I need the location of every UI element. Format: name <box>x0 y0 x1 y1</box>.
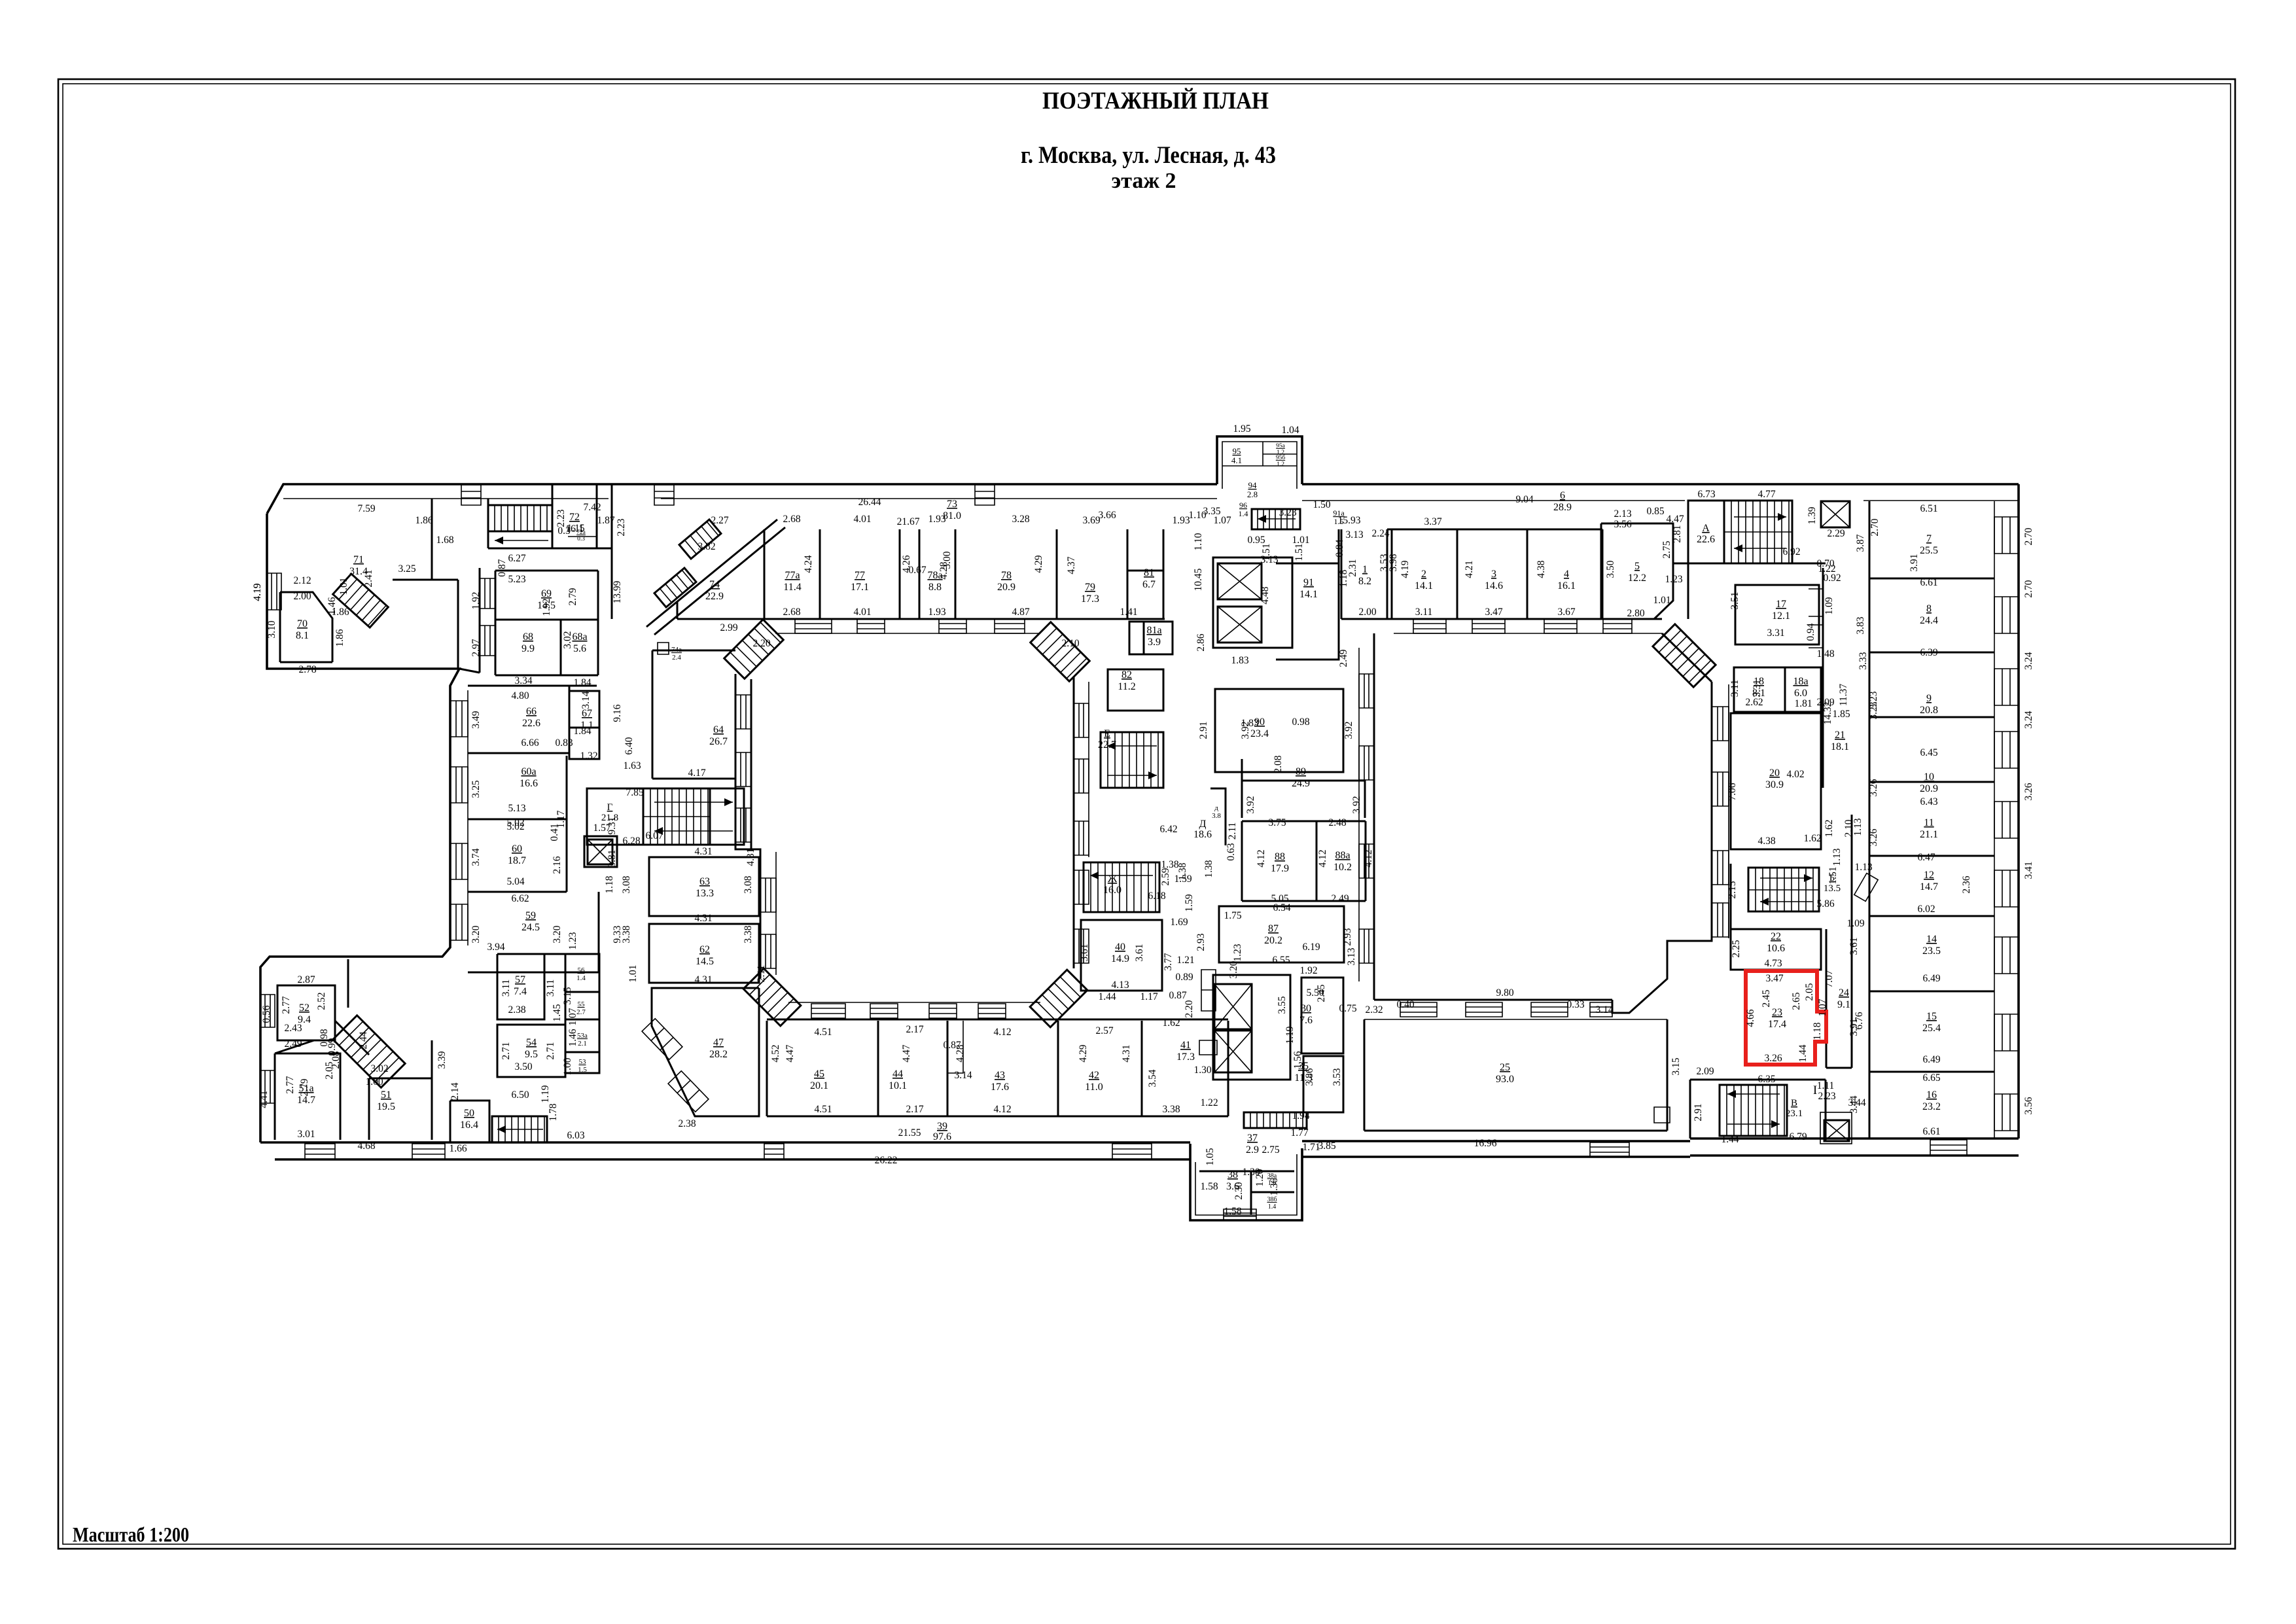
svg-text:1.10: 1.10 <box>1188 510 1206 521</box>
svg-text:12.1: 12.1 <box>1772 610 1790 622</box>
svg-text:0.63: 0.63 <box>1226 843 1237 860</box>
svg-text:1.75: 1.75 <box>1224 910 1241 921</box>
svg-text:2.38: 2.38 <box>678 1118 696 1129</box>
svg-text:1.07: 1.07 <box>1817 998 1828 1016</box>
svg-text:2.24: 2.24 <box>1371 528 1389 539</box>
svg-text:20.9: 20.9 <box>1920 783 1938 794</box>
svg-text:6.42: 6.42 <box>1159 824 1177 835</box>
svg-text:42: 42 <box>1089 1070 1099 1081</box>
svg-text:1.50: 1.50 <box>1313 499 1330 510</box>
svg-text:1.46: 1.46 <box>567 1029 578 1046</box>
svg-text:1.41: 1.41 <box>1120 607 1137 618</box>
svg-text:0.3: 0.3 <box>577 536 585 542</box>
svg-text:6: 6 <box>1560 490 1565 501</box>
svg-text:14.32: 14.32 <box>1822 702 1833 725</box>
svg-text:6.7: 6.7 <box>1142 579 1156 590</box>
svg-text:25.5: 25.5 <box>1920 545 1938 556</box>
svg-text:26.22: 26.22 <box>875 1155 898 1166</box>
svg-text:21.67: 21.67 <box>897 516 920 527</box>
svg-text:7.6: 7.6 <box>1299 1015 1313 1026</box>
svg-text:3.51: 3.51 <box>1729 591 1740 609</box>
svg-text:6.03: 6.03 <box>567 1130 584 1141</box>
svg-text:2.48: 2.48 <box>1328 817 1346 828</box>
svg-text:5.23: 5.23 <box>508 574 525 585</box>
svg-text:2.43: 2.43 <box>284 1023 302 1034</box>
svg-text:21: 21 <box>1835 730 1845 741</box>
svg-text:0.56: 0.56 <box>261 1005 272 1023</box>
svg-text:97.6: 97.6 <box>933 1131 951 1142</box>
svg-text:62: 62 <box>699 944 710 955</box>
svg-text:2.87: 2.87 <box>297 974 315 985</box>
svg-text:2.17: 2.17 <box>906 1024 923 1035</box>
svg-text:68: 68 <box>523 631 533 643</box>
svg-text:53: 53 <box>579 1058 587 1066</box>
svg-text:2.14: 2.14 <box>450 1082 461 1100</box>
svg-text:63: 63 <box>699 876 710 887</box>
svg-text:2.79: 2.79 <box>299 1078 310 1096</box>
svg-text:1.23: 1.23 <box>1665 574 1682 585</box>
svg-text:1.05: 1.05 <box>1205 1148 1216 1165</box>
svg-text:этаж 2: этаж 2 <box>1112 169 1176 193</box>
svg-text:1.10: 1.10 <box>1193 533 1204 550</box>
svg-text:1.18: 1.18 <box>604 875 615 893</box>
svg-text:1.38: 1.38 <box>1203 860 1214 877</box>
svg-text:38б: 38б <box>1267 1196 1277 1203</box>
svg-text:3.75: 3.75 <box>1268 817 1286 828</box>
svg-text:14.1: 14.1 <box>1299 589 1318 600</box>
svg-text:87: 87 <box>1268 923 1279 934</box>
svg-text:3.23: 3.23 <box>1868 691 1879 709</box>
svg-text:1.86: 1.86 <box>334 629 345 646</box>
svg-text:4.26: 4.26 <box>901 555 912 573</box>
svg-text:2.16: 2.16 <box>552 856 563 874</box>
svg-text:2.05: 2.05 <box>324 1061 335 1079</box>
svg-text:18.1: 18.1 <box>1831 741 1849 752</box>
svg-text:2.77: 2.77 <box>285 1076 296 1093</box>
svg-text:67: 67 <box>582 708 592 719</box>
svg-text:1.58: 1.58 <box>1200 1181 1218 1192</box>
svg-text:3.14: 3.14 <box>1595 1004 1613 1015</box>
svg-text:3.26: 3.26 <box>2023 783 2034 800</box>
svg-text:13.3: 13.3 <box>696 888 714 899</box>
svg-text:2.9: 2.9 <box>1246 1144 1259 1156</box>
svg-text:2.71: 2.71 <box>545 1042 556 1059</box>
svg-text:4.01: 4.01 <box>853 607 871 618</box>
svg-text:3.85: 3.85 <box>1318 1140 1335 1152</box>
svg-text:2.49: 2.49 <box>1331 893 1349 904</box>
svg-text:3.86: 3.86 <box>1304 1068 1315 1086</box>
svg-text:2.70: 2.70 <box>2023 580 2034 597</box>
svg-text:2.81: 2.81 <box>1672 525 1683 542</box>
svg-text:24.4: 24.4 <box>1920 615 1938 626</box>
svg-text:21.55: 21.55 <box>898 1127 921 1139</box>
svg-text:2.99: 2.99 <box>720 622 737 633</box>
svg-text:4.31: 4.31 <box>694 913 712 924</box>
svg-text:4.66: 4.66 <box>1745 1009 1756 1027</box>
svg-text:19.5: 19.5 <box>377 1101 395 1112</box>
svg-text:2.79: 2.79 <box>567 588 578 605</box>
svg-text:5: 5 <box>1634 561 1640 572</box>
svg-text:4.12: 4.12 <box>1317 849 1328 867</box>
svg-text:2.23: 2.23 <box>1818 1091 1835 1102</box>
svg-text:0.85: 0.85 <box>1646 506 1664 517</box>
svg-text:3.02: 3.02 <box>370 1063 388 1074</box>
svg-text:11.2: 11.2 <box>1118 681 1135 692</box>
svg-text:1.87: 1.87 <box>597 515 614 526</box>
svg-text:14.5: 14.5 <box>696 956 714 967</box>
svg-text:60a: 60a <box>521 766 536 777</box>
svg-text:3.92: 3.92 <box>1240 721 1251 739</box>
svg-text:10.2: 10.2 <box>1333 862 1352 873</box>
svg-text:3.25: 3.25 <box>398 563 415 574</box>
svg-text:3.11: 3.11 <box>545 980 556 997</box>
svg-text:14: 14 <box>1926 934 1937 945</box>
svg-text:1.48: 1.48 <box>1816 648 1834 660</box>
svg-text:7.59: 7.59 <box>357 503 375 514</box>
svg-text:6.47: 6.47 <box>1917 852 1935 863</box>
svg-text:0.94: 0.94 <box>1805 623 1816 641</box>
svg-text:3.67: 3.67 <box>1557 607 1575 618</box>
svg-text:3.11: 3.11 <box>501 980 512 997</box>
svg-text:1.4: 1.4 <box>1268 1203 1277 1210</box>
svg-text:3.14: 3.14 <box>580 691 592 709</box>
svg-text:Д: Д <box>1199 819 1207 830</box>
svg-text:64: 64 <box>713 724 724 735</box>
svg-text:1.81: 1.81 <box>1794 698 1812 709</box>
svg-text:1.5: 1.5 <box>578 1066 587 1074</box>
svg-text:3.92: 3.92 <box>1245 796 1256 813</box>
svg-text:2.20: 2.20 <box>752 638 770 649</box>
svg-text:2.71: 2.71 <box>501 1042 512 1059</box>
svg-text:95б: 95б <box>1276 454 1286 461</box>
svg-text:2.10: 2.10 <box>1843 819 1854 837</box>
svg-text:22.9: 22.9 <box>705 591 724 602</box>
svg-text:20.2: 20.2 <box>1264 935 1282 946</box>
svg-text:11.37: 11.37 <box>1838 684 1849 707</box>
svg-text:3.94: 3.94 <box>487 942 504 953</box>
svg-text:3.24: 3.24 <box>2023 652 2034 669</box>
svg-text:15.93: 15.93 <box>1338 515 1361 526</box>
svg-text:1.62: 1.62 <box>1162 1017 1180 1029</box>
svg-text:1.66: 1.66 <box>449 1143 467 1154</box>
svg-text:22.6: 22.6 <box>1697 534 1715 545</box>
svg-text:56: 56 <box>578 966 586 974</box>
svg-text:70: 70 <box>297 618 308 629</box>
svg-text:4.48: 4.48 <box>1260 586 1271 604</box>
svg-text:3.15: 3.15 <box>562 987 573 1004</box>
svg-text:57: 57 <box>515 974 525 985</box>
svg-text:4.37: 4.37 <box>1066 556 1077 574</box>
svg-text:16.6: 16.6 <box>520 778 538 789</box>
svg-text:1.46: 1.46 <box>327 597 338 614</box>
svg-text:20.9: 20.9 <box>997 582 1016 593</box>
svg-text:2.91: 2.91 <box>1198 721 1209 739</box>
svg-text:д: д <box>1214 804 1218 812</box>
svg-text:4.24: 4.24 <box>803 555 814 573</box>
svg-text:Е: Е <box>1104 728 1110 739</box>
svg-text:13.99: 13.99 <box>612 580 623 603</box>
svg-text:1.92: 1.92 <box>541 598 552 616</box>
svg-text:1.38: 1.38 <box>1177 862 1188 880</box>
svg-text:1.01: 1.01 <box>627 964 639 982</box>
svg-text:23.4: 23.4 <box>1250 728 1269 739</box>
svg-text:52: 52 <box>299 1002 309 1014</box>
svg-text:2.57: 2.57 <box>1095 1025 1113 1036</box>
svg-text:5.05: 5.05 <box>1271 893 1288 904</box>
svg-text:20: 20 <box>1769 768 1780 779</box>
svg-text:4.29: 4.29 <box>1078 1044 1089 1062</box>
svg-text:3.11: 3.11 <box>1415 607 1433 618</box>
svg-text:10.6: 10.6 <box>1767 943 1785 954</box>
svg-text:2.97: 2.97 <box>470 639 482 656</box>
svg-text:1: 1 <box>1362 564 1368 575</box>
svg-text:Масштаб 1:200: Масштаб 1:200 <box>73 1523 189 1546</box>
svg-text:4.47: 4.47 <box>1666 514 1684 525</box>
svg-text:4.38: 4.38 <box>1536 560 1547 578</box>
svg-text:2.09: 2.09 <box>1696 1066 1714 1077</box>
svg-text:7.4: 7.4 <box>514 986 527 997</box>
svg-text:3.31: 3.31 <box>1752 679 1763 697</box>
svg-text:3.26: 3.26 <box>1868 779 1879 796</box>
svg-text:6.61: 6.61 <box>1922 1126 1940 1137</box>
svg-text:30.9: 30.9 <box>1765 779 1784 790</box>
svg-text:0.87: 0.87 <box>1169 990 1186 1001</box>
svg-text:1.56: 1.56 <box>1292 1051 1303 1068</box>
svg-text:1.20: 1.20 <box>1254 1169 1265 1186</box>
svg-text:3.61: 3.61 <box>1079 944 1090 961</box>
svg-text:20.1: 20.1 <box>810 1080 828 1091</box>
svg-text:3.25: 3.25 <box>470 780 482 798</box>
svg-text:1.59: 1.59 <box>1184 894 1195 911</box>
svg-text:28.9: 28.9 <box>1553 502 1572 513</box>
svg-text:2.49: 2.49 <box>284 1038 302 1050</box>
svg-text:0.89: 0.89 <box>1175 972 1193 983</box>
svg-text:4.80: 4.80 <box>511 690 529 701</box>
svg-text:4.41: 4.41 <box>258 1090 270 1108</box>
svg-text:44: 44 <box>892 1068 903 1080</box>
svg-text:1.09: 1.09 <box>1846 918 1864 929</box>
svg-text:14.7: 14.7 <box>1920 881 1938 892</box>
svg-text:18a: 18a <box>1793 676 1808 687</box>
svg-text:1.44: 1.44 <box>1797 1044 1809 1062</box>
svg-text:6.35: 6.35 <box>1757 1074 1775 1085</box>
svg-text:77: 77 <box>855 570 865 581</box>
svg-text:3.77: 3.77 <box>1163 953 1174 970</box>
svg-text:3.38: 3.38 <box>1162 1104 1180 1115</box>
svg-text:2.11: 2.11 <box>1227 822 1238 840</box>
svg-text:3.92: 3.92 <box>1351 796 1362 813</box>
svg-text:25: 25 <box>1500 1062 1510 1073</box>
svg-text:2.65: 2.65 <box>1791 992 1802 1010</box>
svg-text:3.14: 3.14 <box>954 1070 972 1081</box>
svg-text:0.33: 0.33 <box>1566 999 1584 1010</box>
svg-text:55: 55 <box>578 1000 586 1008</box>
svg-text:26.44: 26.44 <box>858 497 881 508</box>
svg-text:2.4: 2.4 <box>672 654 681 662</box>
svg-text:8.1: 8.1 <box>296 630 309 641</box>
svg-text:2.68: 2.68 <box>783 607 800 618</box>
svg-text:4.31: 4.31 <box>745 848 756 866</box>
svg-text:4.01: 4.01 <box>853 514 871 525</box>
svg-text:0.70: 0.70 <box>1816 558 1834 569</box>
svg-text:3.31: 3.31 <box>1767 627 1784 639</box>
svg-text:16.96: 16.96 <box>1474 1138 1497 1149</box>
svg-text:5.04: 5.04 <box>506 876 524 887</box>
svg-text:1.30: 1.30 <box>1193 1065 1211 1076</box>
svg-text:2.59: 2.59 <box>1160 868 1171 885</box>
svg-text:3.91: 3.91 <box>1909 554 1920 571</box>
svg-text:23.2: 23.2 <box>1922 1101 1941 1112</box>
svg-text:0.84: 0.84 <box>1334 539 1345 557</box>
svg-text:1.77: 1.77 <box>1290 1127 1308 1139</box>
svg-text:1.00: 1.00 <box>365 1076 383 1087</box>
svg-text:1.07: 1.07 <box>567 1008 578 1025</box>
svg-text:2.05: 2.05 <box>1804 983 1815 1000</box>
svg-text:1.51: 1.51 <box>1828 866 1839 884</box>
svg-text:6.19: 6.19 <box>1302 942 1320 953</box>
svg-text:3.39: 3.39 <box>436 1051 448 1068</box>
svg-text:3.37: 3.37 <box>1424 516 1441 527</box>
svg-text:2.30: 2.30 <box>1233 1182 1245 1199</box>
svg-text:1.62: 1.62 <box>1824 819 1835 837</box>
svg-text:17.3: 17.3 <box>1176 1051 1195 1063</box>
svg-text:4.31: 4.31 <box>1121 1044 1132 1062</box>
svg-text:1.4: 1.4 <box>1239 509 1248 518</box>
svg-text:1.83: 1.83 <box>1231 655 1248 666</box>
svg-text:1.51: 1.51 <box>1261 543 1272 561</box>
svg-text:50: 50 <box>464 1108 474 1119</box>
svg-text:54: 54 <box>526 1037 537 1048</box>
svg-text:4.12: 4.12 <box>1363 849 1374 867</box>
svg-text:3.44: 3.44 <box>1848 1095 1860 1113</box>
svg-text:2.77: 2.77 <box>281 996 292 1014</box>
svg-text:9.16: 9.16 <box>612 704 623 722</box>
svg-text:6.61: 6.61 <box>1920 577 1937 588</box>
svg-text:11.0: 11.0 <box>1085 1082 1103 1093</box>
svg-text:82: 82 <box>1122 669 1132 680</box>
svg-text:4.51: 4.51 <box>814 1027 832 1038</box>
svg-text:5.6: 5.6 <box>573 643 586 654</box>
svg-text:1.13: 1.13 <box>1854 862 1872 873</box>
svg-text:2.91: 2.91 <box>1693 1103 1704 1121</box>
svg-text:2.93: 2.93 <box>1195 933 1207 951</box>
svg-text:6.39: 6.39 <box>1920 647 1937 658</box>
svg-text:3.49: 3.49 <box>470 711 482 728</box>
svg-text:1.4: 1.4 <box>576 974 586 982</box>
svg-text:2.00: 2.00 <box>1358 607 1376 618</box>
svg-text:95a: 95a <box>1276 443 1286 450</box>
svg-text:3.56: 3.56 <box>2023 1097 2034 1114</box>
svg-text:4.21: 4.21 <box>1464 560 1475 578</box>
svg-text:6.18: 6.18 <box>1148 891 1165 902</box>
svg-text:1.23: 1.23 <box>1232 944 1243 961</box>
svg-text:2.44: 2.44 <box>358 1031 369 1049</box>
svg-text:В: В <box>1791 1098 1797 1108</box>
svg-text:3.74: 3.74 <box>470 848 482 866</box>
svg-text:40: 40 <box>1115 942 1125 953</box>
svg-text:4.31: 4.31 <box>694 974 712 985</box>
svg-text:14.9: 14.9 <box>1111 953 1129 964</box>
svg-text:4.38: 4.38 <box>1757 836 1775 847</box>
svg-text:94: 94 <box>1248 480 1258 490</box>
svg-text:39: 39 <box>937 1121 947 1132</box>
svg-text:10.45: 10.45 <box>1193 568 1204 591</box>
svg-text:41: 41 <box>1180 1040 1191 1051</box>
svg-text:4.47: 4.47 <box>901 1044 912 1062</box>
svg-text:93.0: 93.0 <box>1496 1074 1514 1085</box>
svg-text:6.92: 6.92 <box>1782 546 1800 557</box>
svg-text:6.55: 6.55 <box>1272 955 1290 966</box>
svg-text:3.91: 3.91 <box>1848 1018 1860 1036</box>
svg-text:0.92: 0.92 <box>1823 573 1841 584</box>
svg-text:6.0: 6.0 <box>1794 688 1807 699</box>
svg-text:2.31: 2.31 <box>1347 559 1358 576</box>
svg-text:7.42: 7.42 <box>583 502 601 513</box>
svg-text:3.15: 3.15 <box>1670 1057 1682 1075</box>
svg-text:1.09: 1.09 <box>1824 597 1835 614</box>
svg-text:3.98: 3.98 <box>1388 554 1399 571</box>
svg-text:6.49: 6.49 <box>1922 1054 1940 1065</box>
svg-text:1.00: 1.00 <box>562 1057 573 1075</box>
svg-text:3.38: 3.38 <box>621 925 632 943</box>
svg-text:38: 38 <box>1227 1169 1238 1180</box>
svg-text:8.2: 8.2 <box>1358 576 1371 587</box>
svg-text:17.3: 17.3 <box>1081 593 1099 605</box>
svg-text:17.4: 17.4 <box>1768 1019 1786 1030</box>
svg-text:47: 47 <box>713 1037 724 1048</box>
svg-text:1.92: 1.92 <box>470 591 482 609</box>
svg-text:4.31: 4.31 <box>694 846 712 857</box>
svg-text:1.36: 1.36 <box>1269 1178 1280 1195</box>
svg-text:3.20: 3.20 <box>552 925 563 943</box>
svg-text:3.13: 3.13 <box>1346 947 1357 965</box>
svg-text:0.75: 0.75 <box>1339 1003 1356 1014</box>
svg-text:2.45: 2.45 <box>1761 989 1772 1007</box>
svg-text:6.27: 6.27 <box>508 553 525 564</box>
svg-text:6.07: 6.07 <box>645 830 663 841</box>
svg-text:3.33: 3.33 <box>1858 652 1869 669</box>
svg-text:23: 23 <box>1772 1007 1782 1018</box>
svg-text:1.32: 1.32 <box>580 750 597 762</box>
svg-text:77a: 77a <box>785 570 800 581</box>
svg-text:3.38: 3.38 <box>743 925 754 943</box>
svg-text:1.86: 1.86 <box>415 515 433 526</box>
svg-text:3.47: 3.47 <box>1485 607 1502 618</box>
svg-text:24.5: 24.5 <box>521 922 540 933</box>
svg-text:1.19: 1.19 <box>540 1085 551 1103</box>
svg-text:1.71: 1.71 <box>1302 1142 1320 1153</box>
svg-text:г. Москва, ул. Лесная, д. 43: г. Москва, ул. Лесная, д. 43 <box>1021 142 1276 169</box>
svg-text:30: 30 <box>1301 1003 1311 1014</box>
svg-text:1.63: 1.63 <box>623 760 641 771</box>
svg-text:26.7: 26.7 <box>709 736 728 747</box>
svg-text:3.28: 3.28 <box>1012 514 1029 525</box>
svg-text:23.1: 23.1 <box>1786 1108 1803 1119</box>
svg-text:59: 59 <box>525 910 536 921</box>
svg-text:5.13: 5.13 <box>508 803 525 814</box>
svg-text:1.51: 1.51 <box>1294 543 1305 561</box>
svg-text:68a: 68a <box>572 631 587 643</box>
svg-text:22.6: 22.6 <box>522 718 540 729</box>
svg-text:4.87: 4.87 <box>1012 607 1029 618</box>
svg-text:3.10: 3.10 <box>266 620 277 638</box>
svg-text:2.52: 2.52 <box>316 992 327 1010</box>
svg-text:1.78: 1.78 <box>548 1103 559 1121</box>
svg-text:60: 60 <box>512 843 522 855</box>
svg-text:А: А <box>1702 523 1710 534</box>
svg-text:4.12: 4.12 <box>1256 849 1267 867</box>
svg-text:18.7: 18.7 <box>508 855 526 866</box>
